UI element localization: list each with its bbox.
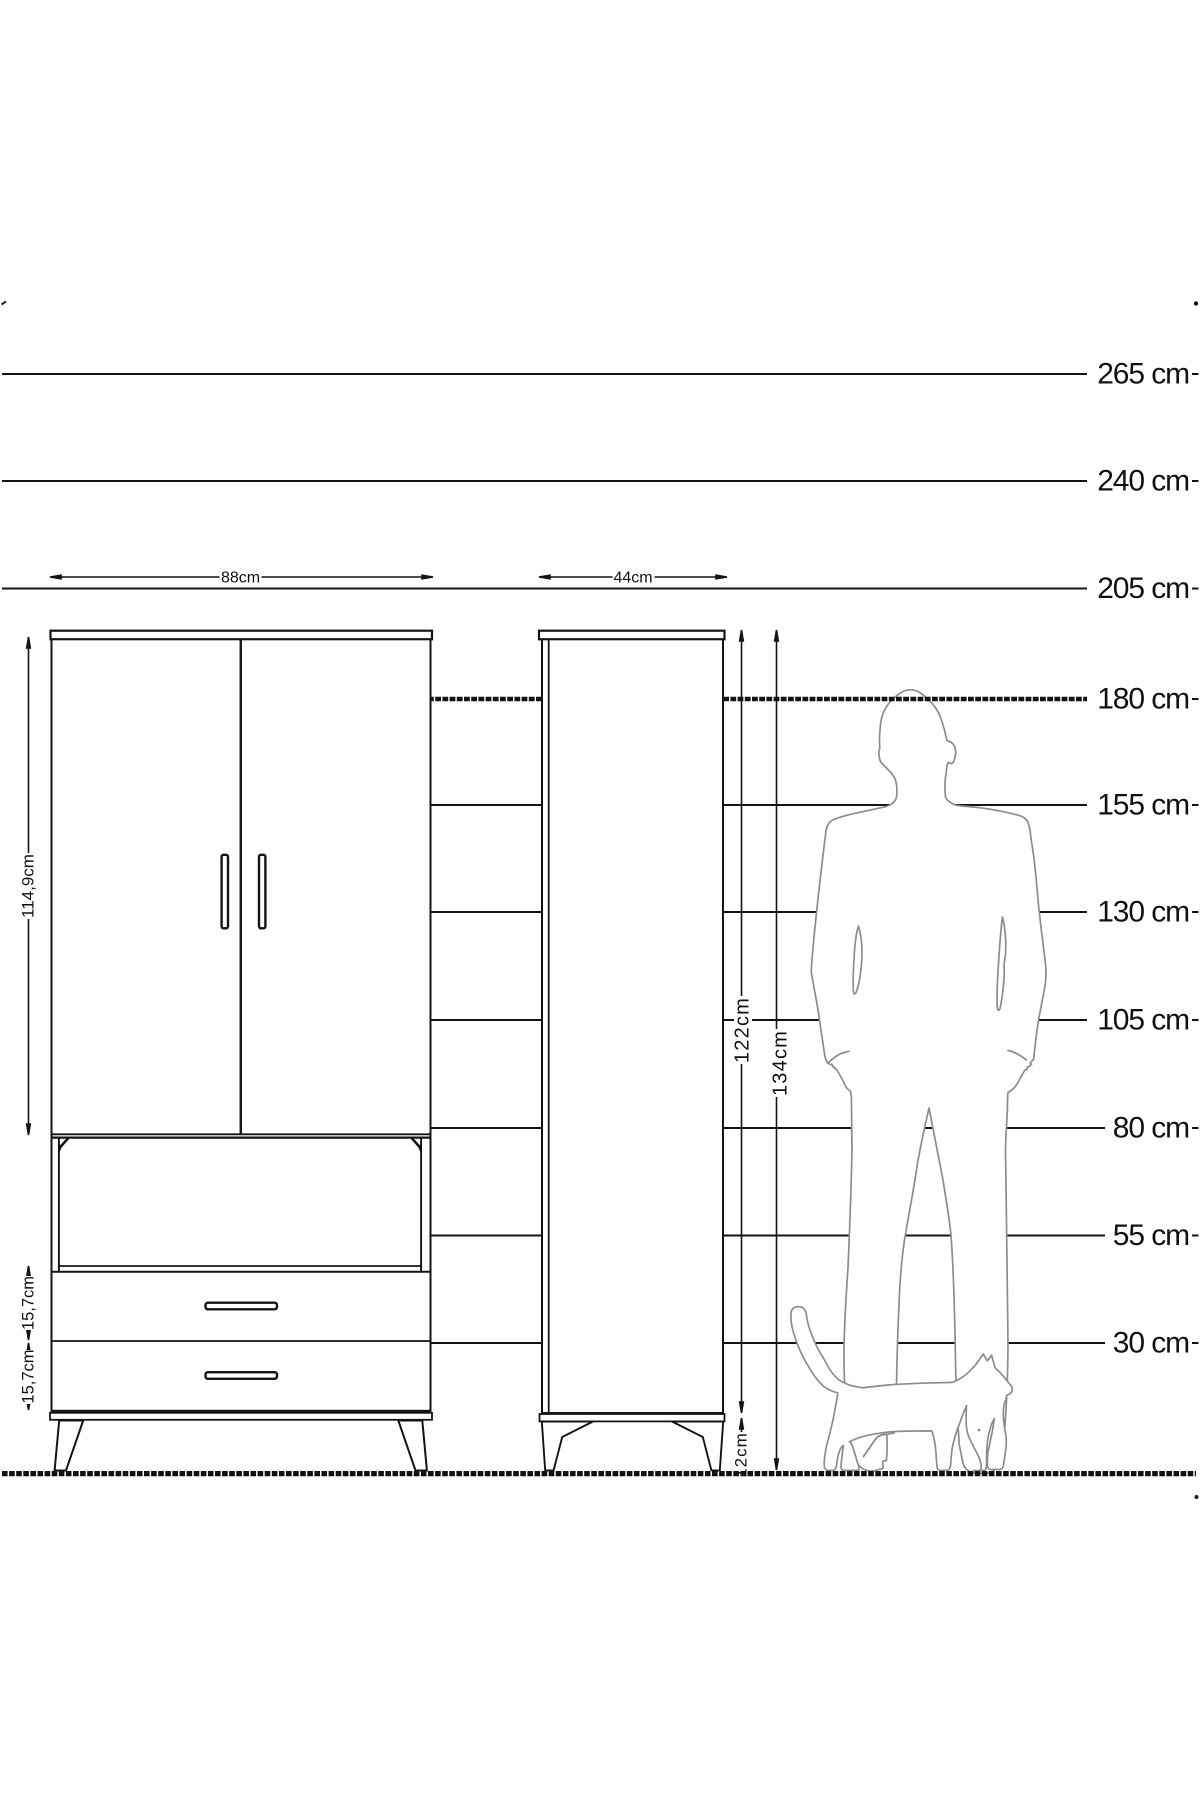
svg-text:80 cm: 80 cm (1113, 1112, 1189, 1145)
svg-text:15,7cm: 15,7cm (19, 1276, 37, 1330)
svg-text:12cm: 12cm (731, 1432, 750, 1478)
svg-text:88cm: 88cm (221, 570, 260, 587)
svg-text:30 cm: 30 cm (1113, 1327, 1189, 1360)
svg-text:55 cm: 55 cm (1113, 1219, 1189, 1252)
svg-text:105 cm: 105 cm (1097, 1004, 1189, 1037)
svg-text:15,7cm: 15,7cm (19, 1349, 37, 1403)
svg-text:265 cm: 265 cm (1097, 358, 1189, 391)
svg-text:240 cm: 240 cm (1097, 465, 1189, 498)
svg-text:122cm: 122cm (731, 997, 753, 1063)
svg-text:134cm: 134cm (769, 1030, 791, 1096)
svg-text:44cm: 44cm (613, 570, 652, 587)
svg-text:205 cm: 205 cm (1097, 572, 1189, 605)
svg-text:114,9cm: 114,9cm (18, 854, 37, 918)
svg-text:180 cm: 180 cm (1097, 683, 1189, 716)
svg-text:155 cm: 155 cm (1097, 789, 1189, 822)
svg-text:130 cm: 130 cm (1097, 896, 1189, 929)
